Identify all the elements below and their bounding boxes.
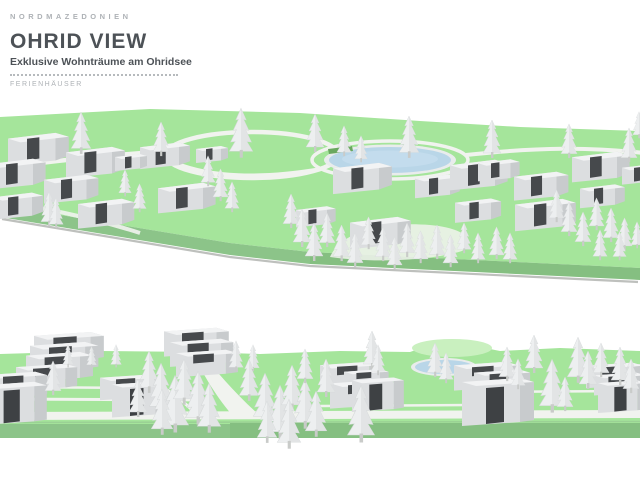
- tree: [633, 112, 640, 139]
- eyebrow-label: NORDMAZEDONIEN: [10, 12, 192, 21]
- house: [0, 382, 47, 425]
- terrain-edge-left: [0, 424, 230, 438]
- page-background: NORDMAZEDONIEN OHRID VIEW Exklusive Wohn…: [0, 0, 640, 480]
- page-title: OHRID VIEW: [10, 30, 192, 54]
- page-subtitle: Exklusive Wohnträume am Ohridsee: [10, 56, 192, 68]
- aerial-site-render: [0, 105, 640, 305]
- hill-highlight: [412, 339, 492, 357]
- header: NORDMAZEDONIEN OHRID VIEW Exklusive Wohn…: [10, 12, 192, 88]
- dotted-divider: [10, 71, 178, 76]
- street-level-render: [0, 318, 640, 463]
- tagline-label: FERIENHÄUSER: [10, 81, 192, 88]
